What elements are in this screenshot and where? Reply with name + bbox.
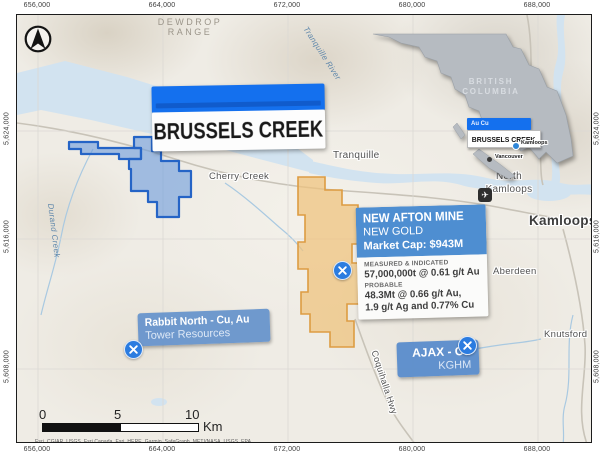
aberdeen-label: Aberdeen: [493, 266, 537, 277]
new-afton-resources: MEASURED & INDICATED 57,000,000t @ 0.61 …: [357, 254, 489, 319]
scale-bar-graphic: [42, 423, 199, 432]
rabbit-north-box: Rabbit North - Cu, Au Tower Resources: [137, 309, 270, 347]
scale-10: 10: [185, 407, 199, 422]
cherry-creek-line: [225, 183, 303, 251]
north-arrow-icon: [23, 24, 53, 54]
axis-right-5616000: 5,616,000: [594, 212, 601, 262]
axis-bottom-680000: 680,000: [382, 446, 442, 453]
axis-top-680000: 680,000: [382, 2, 442, 9]
brussels-creek-title-text: BRUSSELS CREEK: [154, 116, 324, 146]
inset-kamloops-label: Kamloops: [521, 140, 548, 146]
kamloops-label: Kamloops: [529, 213, 592, 228]
knutsford-label: Knutsford: [544, 329, 587, 340]
axis-bottom-672000: 672,000: [257, 446, 317, 453]
axis-left-5616000: 5,616,000: [4, 212, 11, 262]
axis-left-5608000: 5,608,000: [4, 342, 11, 392]
axis-bottom-688000: 688,000: [507, 446, 567, 453]
inset-commodity-tag: Au Cu: [467, 118, 531, 130]
bc-inset-shape: [361, 27, 577, 179]
brussels-creek-title-box: BRUSSELS CREEK: [151, 83, 325, 151]
new-afton-mine-icon: [333, 261, 352, 280]
scale-5: 5: [114, 407, 121, 422]
axis-right-5608000: 5,608,000: [594, 342, 601, 392]
brussels-creek-title-bar: [151, 83, 324, 112]
new-afton-company: NEW GOLD: [363, 223, 479, 238]
probable-value-2: 1.9 g/t Ag and 0.77% Cu: [365, 300, 478, 314]
new-afton-info-box: NEW AFTON MINE NEW GOLD Market Cap: $943…: [356, 204, 489, 319]
dewdrop-range-label: DEWDROP RANGE: [149, 17, 231, 38]
airport-icon: ✈: [478, 188, 492, 202]
small-pond: [151, 398, 167, 406]
axis-top-672000: 672,000: [257, 2, 317, 9]
map-area: DEWDROP RANGE Tranquille River Durand Cr…: [16, 14, 592, 443]
axis-top-688000: 688,000: [507, 2, 567, 9]
rabbit-north-mine-icon: [124, 340, 143, 359]
axis-bottom-656000: 656,000: [7, 446, 67, 453]
brussels-creek-claims-west: [69, 142, 141, 159]
new-afton-market-cap: Market Cap: $943M: [363, 237, 479, 252]
axis-top-664000: 664,000: [132, 2, 192, 9]
inset-vancouver-label: Vancouver: [495, 154, 523, 160]
axis-right-5624000: 5,624,000: [594, 104, 601, 154]
inset-vancouver-dot: [487, 157, 492, 162]
new-afton-property-outline: [298, 177, 364, 347]
ajax-company: KGHM: [405, 359, 471, 373]
british-columbia-label: BRITISH COLUMBIA: [453, 77, 529, 98]
scale-unit: Km: [203, 419, 223, 434]
ajax-mine-icon: [458, 336, 477, 355]
inset-kamloops-dot: [512, 142, 520, 150]
scale-0: 0: [39, 407, 46, 422]
map-screenshot: DEWDROP RANGE Tranquille River Durand Cr…: [0, 0, 602, 460]
measured-indicated-value: 57,000,000t @ 0.61 g/t Au: [364, 267, 477, 281]
new-afton-header: NEW AFTON MINE NEW GOLD Market Cap: $943…: [356, 204, 487, 257]
cherry-creek-label: Cherry Creek: [209, 171, 269, 182]
axis-left-5624000: 5,624,000: [4, 104, 11, 154]
axis-top-656000: 656,000: [7, 2, 67, 9]
new-afton-title: NEW AFTON MINE: [363, 209, 470, 226]
axis-bottom-664000: 664,000: [132, 446, 192, 453]
